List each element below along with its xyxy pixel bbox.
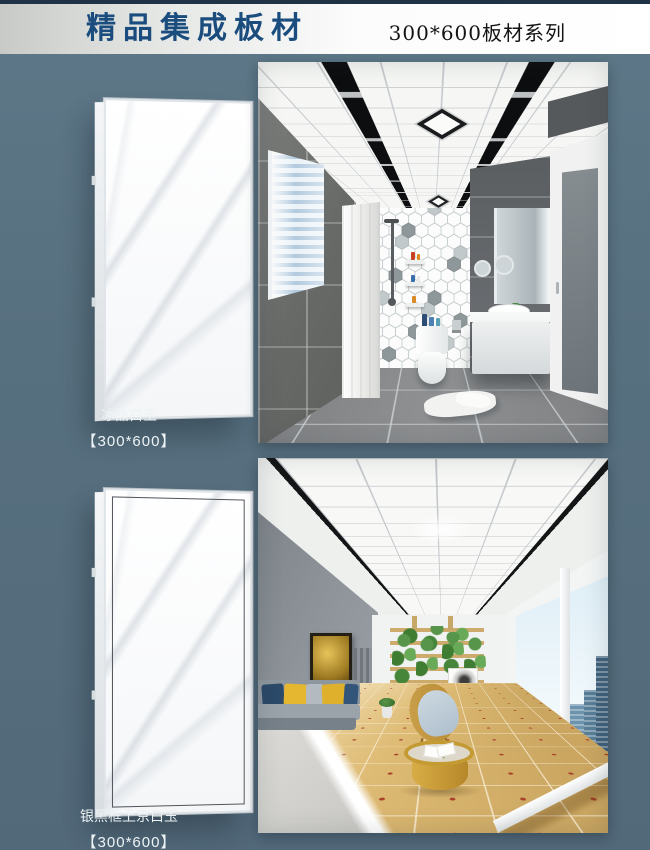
toiletry-bottle (411, 275, 415, 282)
towel-rack (472, 338, 502, 344)
ceiling-black-strip (451, 62, 556, 219)
living-room-scene-photo (258, 458, 608, 833)
vanity-drawer (472, 322, 550, 374)
city-building (530, 758, 540, 813)
toiletry-bottle (417, 254, 420, 260)
easel-leg (449, 696, 461, 741)
sofa (258, 680, 360, 732)
sofa-base (258, 718, 356, 730)
vanity-cabinet (470, 312, 552, 384)
floor-tiles (258, 291, 608, 443)
wash-basin (488, 304, 530, 318)
toiletry-bottle (412, 296, 416, 303)
framed-picture (310, 633, 352, 683)
threshold-light-band (294, 707, 397, 833)
trellis-post (412, 616, 417, 630)
paper-holder (452, 320, 461, 333)
product-caption: 冰晶白玉 【300*600】 (0, 405, 258, 451)
makeup-mirror (474, 260, 491, 277)
door-handle (556, 282, 559, 294)
balcony-floor-tiles (258, 683, 608, 833)
hanging-vine (392, 626, 482, 652)
living-room-floor (258, 716, 378, 833)
product-caption: 银黑框上京白玉 【300*600】 (0, 806, 258, 850)
mirror-cabinet (494, 208, 551, 304)
trellis-post (448, 616, 453, 630)
armchair-leg (419, 738, 424, 750)
toiletry-bottle (411, 252, 415, 260)
table-shadow (398, 784, 482, 798)
toilet-tank (416, 326, 448, 354)
window-wall-frame (508, 550, 608, 833)
easel-canvas-sketch (448, 668, 478, 704)
back-wall (372, 615, 518, 725)
easel-leg (467, 696, 479, 741)
pillow-yellow (321, 683, 346, 706)
bath-rug (423, 388, 497, 419)
hexagon-tile-wall (376, 208, 472, 368)
hanging-vine (416, 636, 438, 722)
corner-shelf (406, 260, 424, 264)
mounting-tab (92, 176, 96, 185)
ceiling-light-panel (405, 514, 476, 543)
pillow-yellow (283, 683, 308, 706)
corner-shelf (406, 303, 424, 307)
pillow-navy (343, 684, 359, 707)
shower-knob (388, 298, 396, 306)
makeup-mirror (494, 255, 514, 275)
armchair-cushion (414, 687, 461, 739)
product-panel-silver-black-frame-white-jade (104, 490, 254, 814)
bath-towel (455, 391, 491, 410)
toiletry-bottle (417, 276, 420, 282)
city-building (570, 704, 584, 814)
paper-on-table (436, 742, 456, 758)
panel-face-marble (104, 488, 253, 816)
left-wall-tiles (258, 98, 356, 443)
diamond-ceiling-light-small (428, 195, 449, 208)
city-building (541, 750, 550, 812)
diamond-ceiling-light (417, 109, 468, 140)
shower-curtain (342, 202, 380, 398)
corner-shelf (406, 282, 424, 286)
hanging-vine (464, 636, 486, 716)
window-blinds (268, 150, 324, 300)
ceiling-panel-grid (266, 458, 608, 615)
hanging-vine (442, 632, 464, 684)
page-header: 精品集成板材 300*600板材系列 (0, 4, 650, 54)
product-panel-ice-crystal-white-jade (104, 100, 254, 418)
city-building-tall (596, 656, 608, 818)
vanity-counter (470, 312, 552, 322)
window-sill-shadow (500, 771, 608, 833)
bathroom-door (550, 132, 608, 410)
ceiling-panel-grid (258, 62, 608, 219)
plant-pot (382, 706, 392, 718)
promo-page: 精品集成板材 300*600板材系列 冰晶白玉 【300*600】 银黑框上京白… (0, 0, 650, 850)
left-wall (258, 512, 378, 726)
door-glass-panel (562, 168, 598, 394)
right-wall-tiles (470, 156, 552, 372)
sofa-seat (258, 704, 360, 720)
plant-trellis (390, 628, 484, 720)
black-inner-frame (112, 496, 245, 807)
mounting-tab (92, 691, 96, 700)
pillow-navy (261, 683, 284, 706)
curtain (354, 648, 376, 726)
toilet (416, 314, 450, 376)
easel-leg (463, 698, 465, 744)
table-glass-top (404, 740, 474, 766)
toiletry-bottle (436, 318, 440, 327)
city-building (584, 690, 596, 818)
table-base (412, 760, 468, 790)
product-name: 冰晶白玉 (0, 405, 258, 425)
wall-above-door (548, 86, 608, 138)
window-sky-view (516, 576, 608, 826)
window-sill (493, 756, 608, 832)
window-mullion (560, 568, 570, 830)
pillow-gray (306, 684, 324, 706)
paper-on-table (423, 745, 444, 760)
bathroom-scene-photo (258, 62, 608, 443)
armchair-leg (445, 738, 450, 750)
mounting-tab (92, 568, 96, 577)
shower-pipe (391, 222, 394, 302)
mounting-tab (92, 297, 96, 306)
coffee-table (404, 740, 480, 798)
product-size: 【300*600】 (0, 430, 258, 451)
series-label: 300*600板材系列 (389, 17, 566, 46)
hanging-vine (392, 634, 416, 698)
sofa-back (258, 680, 360, 704)
toilet-bowl (418, 352, 446, 384)
armchair-shell (404, 680, 461, 747)
armchair (406, 684, 464, 748)
ceiling-black-strip (320, 62, 417, 219)
potted-plant (509, 303, 522, 316)
panel-face-marble (104, 98, 253, 420)
shower-head (384, 219, 399, 223)
toiletry-bottle (422, 314, 427, 327)
paper-on-table (432, 750, 447, 760)
toiletry-bottle (429, 317, 434, 327)
product-size: 【300*600】 (0, 831, 258, 850)
product-name: 银黑框上京白玉 (0, 806, 258, 826)
page-title: 精品集成板材 (86, 4, 308, 54)
